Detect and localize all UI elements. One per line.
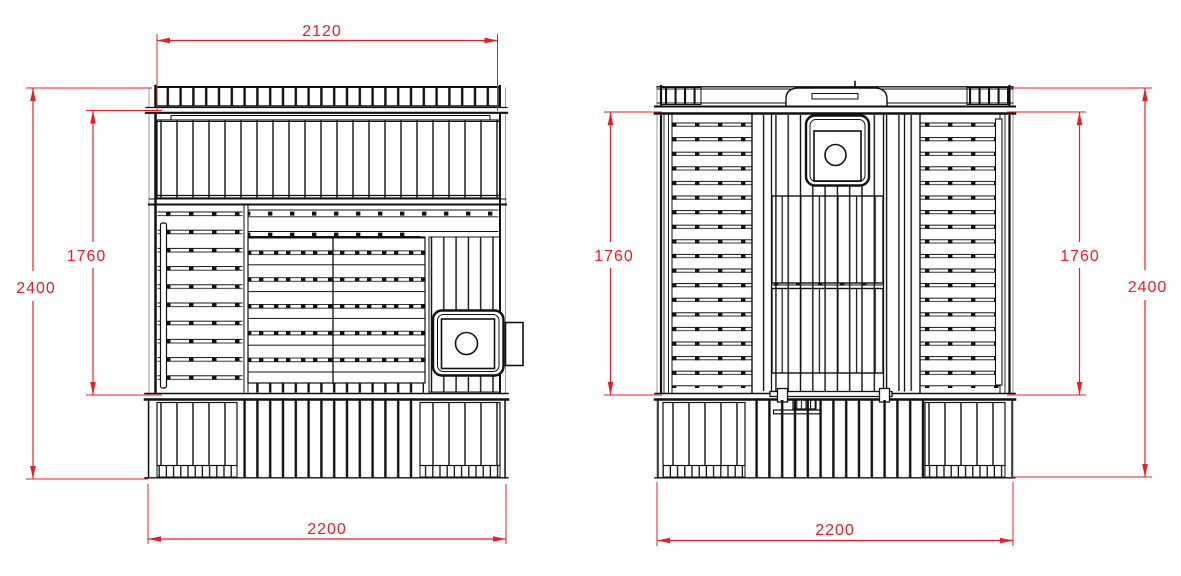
right-slat-panel [920,115,1005,393]
base-skirt [655,400,1015,478]
kick-plank-row [254,383,424,393]
vent-bar [812,94,858,100]
dimension-label: 1760 [67,248,107,265]
dimension-label: 1760 [594,248,634,265]
view-front-elevation [145,86,523,478]
dimension-label: 2200 [815,522,855,539]
stove-glass-circle [456,333,478,355]
dimension-label: 2400 [16,280,56,297]
grab-post [996,119,1003,385]
dimension-label: 2120 [302,23,342,40]
dimension-label: 2200 [307,521,347,538]
grab-post [161,223,167,388]
floor-sill [145,393,508,400]
center-section [752,115,920,391]
door-boards-lower [772,289,883,374]
bench-slats-panel [158,205,249,392]
stove-side-duct [506,323,524,366]
base-skirt [145,400,508,478]
upper-plank-band [149,120,506,205]
roof-band [146,87,507,120]
dimension-label: 1760 [1060,248,1100,265]
rail-bracket-left [778,389,788,403]
left-slat-panel [672,115,752,393]
view-rear-elevation [655,82,1015,479]
stove-glass-circle [825,145,846,166]
door-rail [770,392,892,397]
door-boards-upper [772,196,883,283]
technical-drawing: 2120 2400 1760 [0,0,1181,576]
rail-bracket-right [880,389,890,403]
dimension-label: 2400 [1128,279,1168,296]
